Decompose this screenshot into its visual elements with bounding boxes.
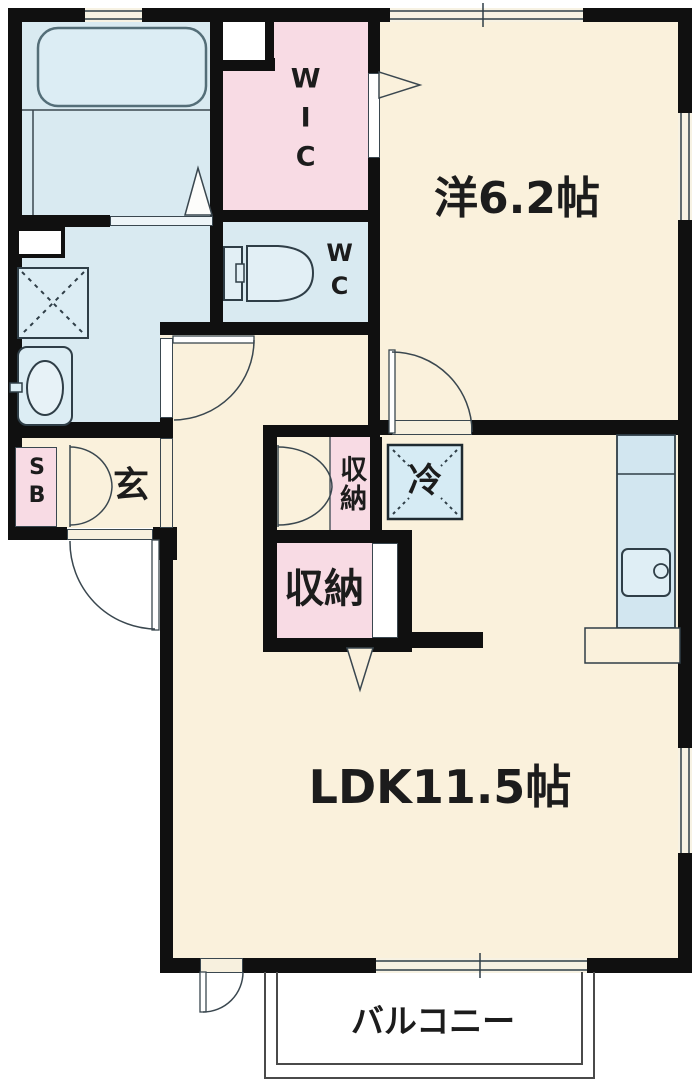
bath-floor-step-lines [22, 110, 210, 215]
wic-door-marker [379, 72, 420, 98]
ldk-label: LDK11.5帖 [309, 763, 572, 811]
refrigerator-label: 冷 [408, 464, 442, 500]
ldk-side-window [678, 748, 692, 853]
bathtub [38, 28, 206, 106]
bath-folding-door-marker [185, 168, 212, 215]
shoe-box-label: SB [25, 455, 48, 511]
kitchen-counter [585, 435, 680, 663]
toilet [224, 246, 313, 301]
service-door [200, 972, 243, 1012]
hall-closet-label: 収納 [336, 455, 364, 513]
floorplan-canvas: 洋6.2帖 LDK11.5帖 バルコニー WIC WC 玄 収納 収納 冷 SB [0, 0, 700, 1081]
bedroom-label: 洋6.2帖 [434, 176, 600, 222]
wc-label: WC [326, 239, 351, 305]
washing-machine-pan [18, 268, 88, 338]
entrance-closet-doors [70, 445, 112, 527]
entrance-label: 玄 [113, 467, 149, 505]
hall-closet-doors [278, 437, 332, 530]
entrance-door [70, 540, 159, 630]
ldk-closet-label: 収納 [284, 568, 364, 610]
fixtures-layer [0, 0, 700, 1081]
balcony-label: バルコニー [351, 1005, 515, 1040]
balcony-window [376, 953, 587, 978]
washroom-door [173, 336, 254, 420]
bedroom-door [389, 350, 472, 433]
bedroom-top-window [390, 3, 583, 27]
bedroom-side-window [678, 113, 692, 220]
ldk-door-marker [347, 648, 373, 690]
wic-label: WIC [291, 64, 319, 181]
bath-window [85, 8, 142, 22]
wash-basin [10, 347, 72, 425]
